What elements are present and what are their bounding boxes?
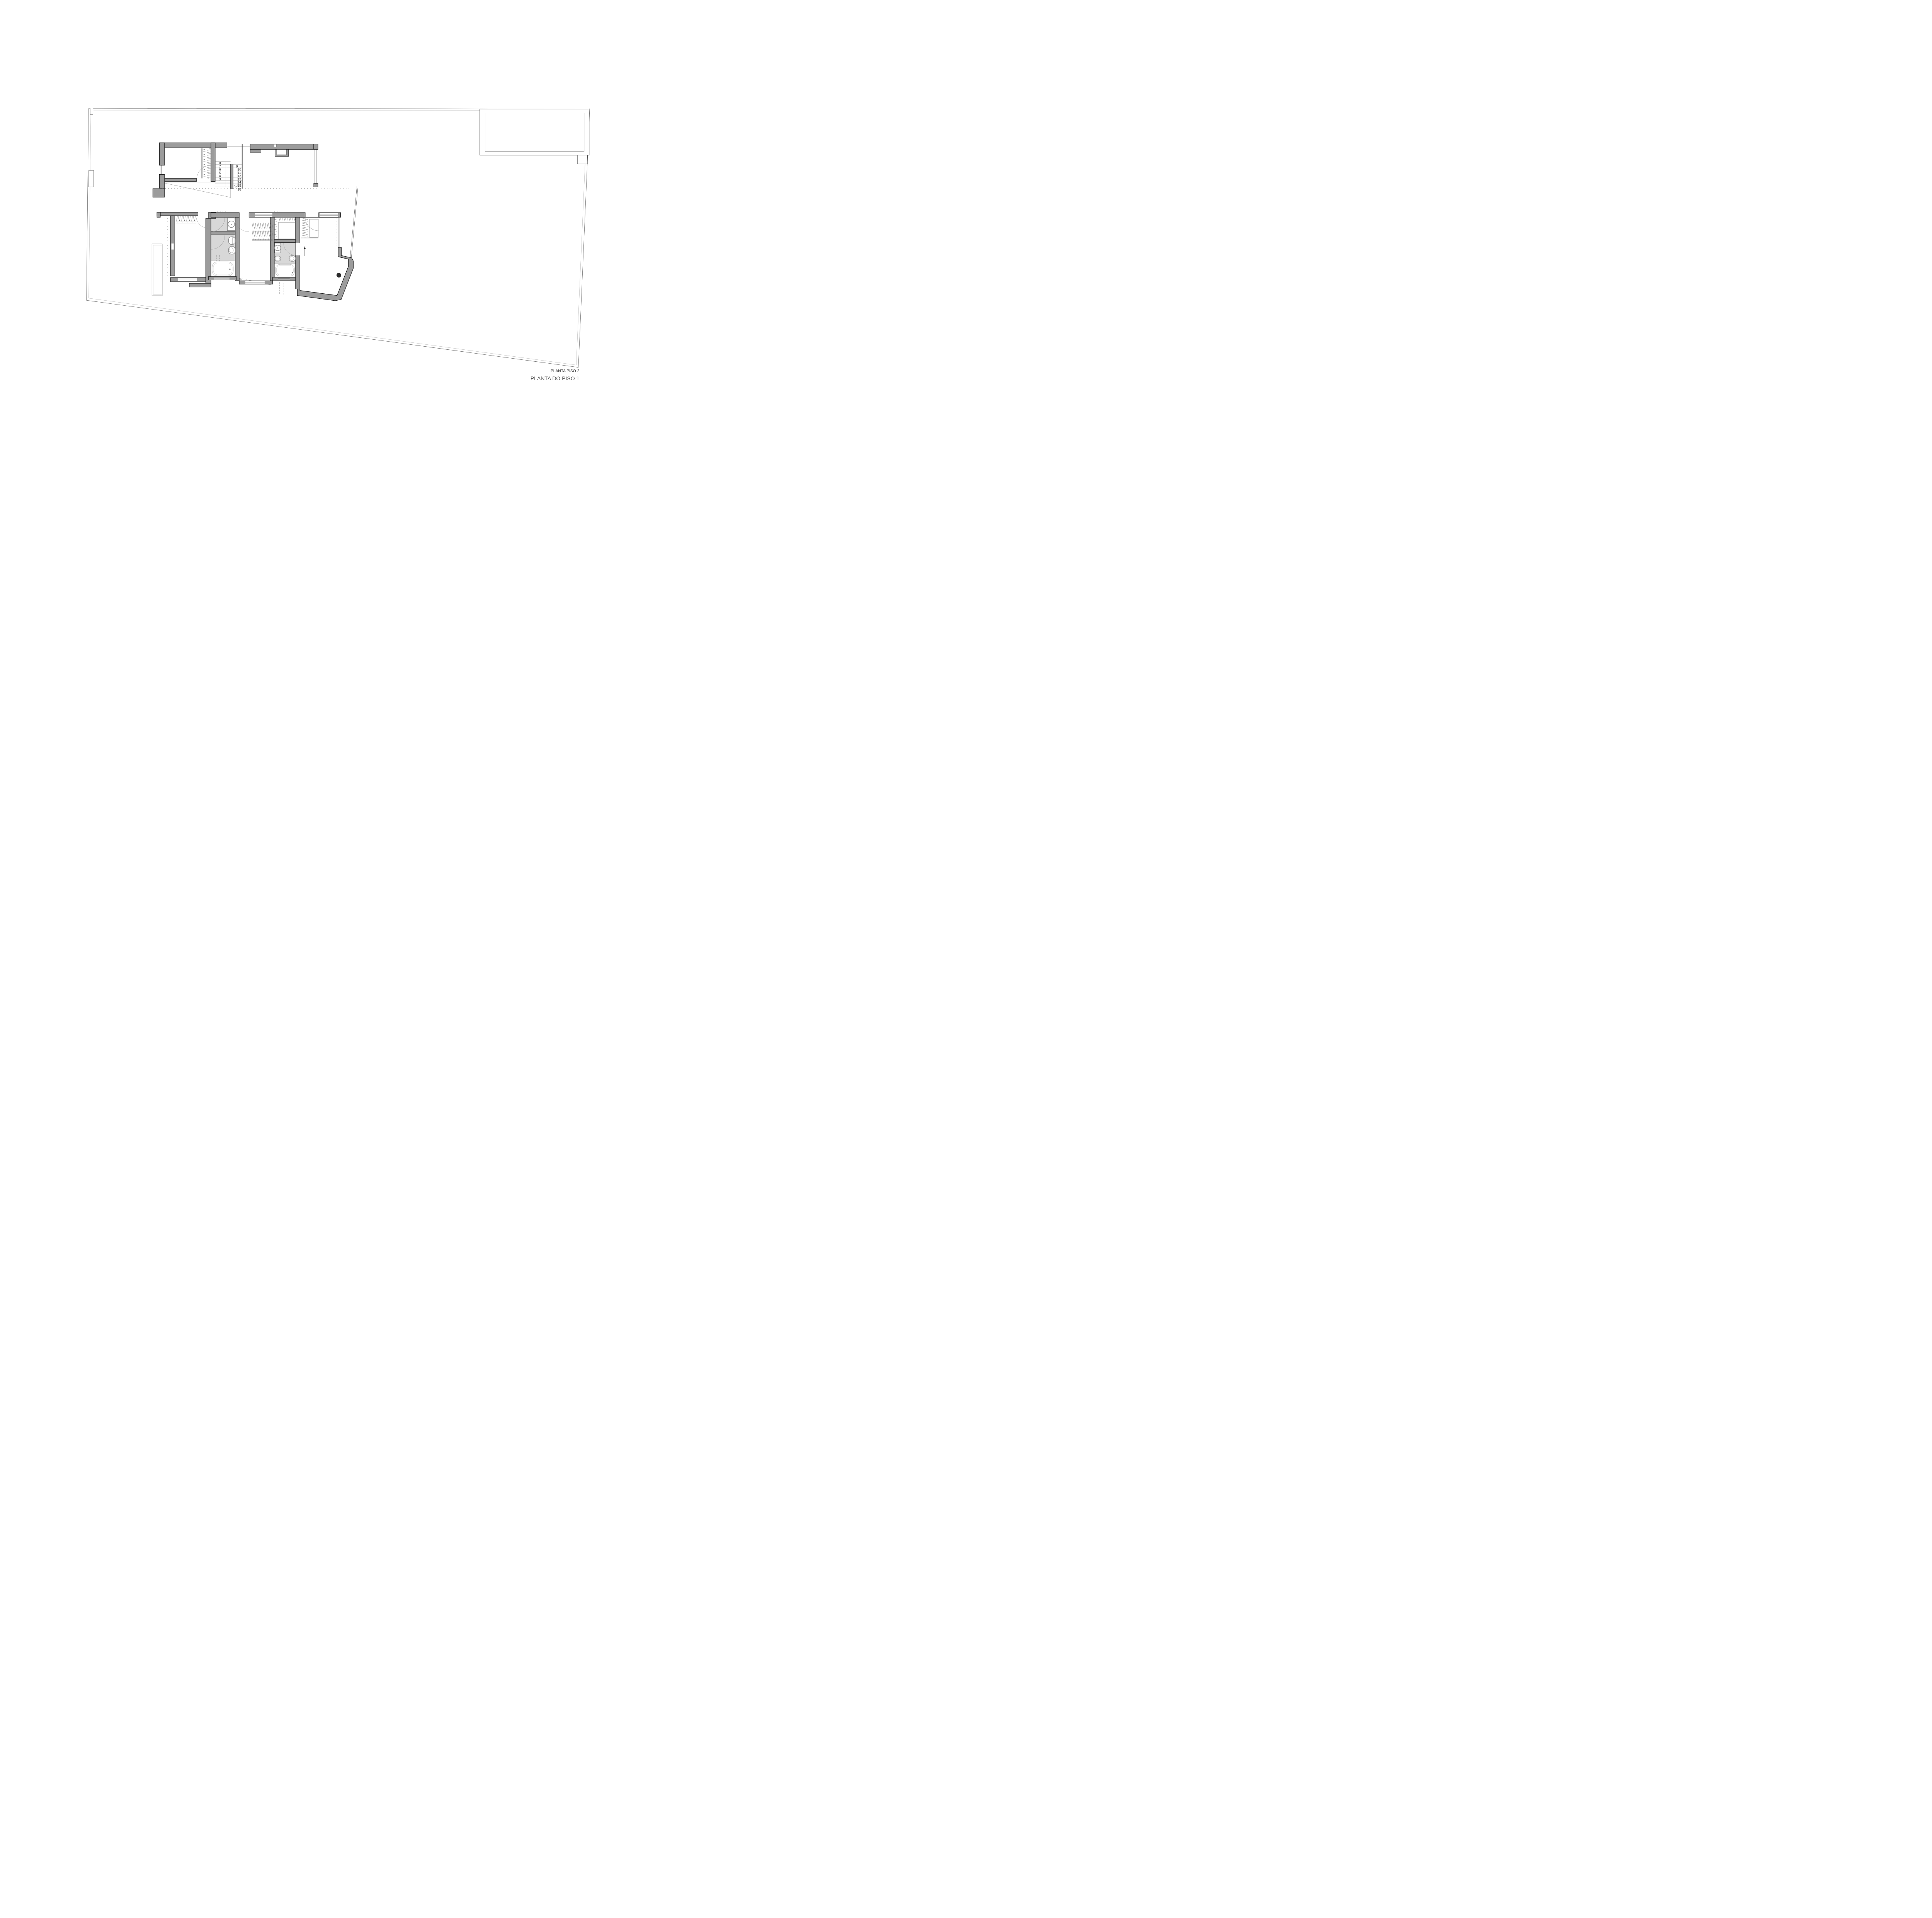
pool-outline xyxy=(480,109,589,164)
stair-number: 13 xyxy=(238,177,241,181)
drawing-sheet: { "titles": { "plan_level_2": "PLANTA PI… xyxy=(0,0,678,480)
titles: PLANTA PISO 2 PLANTA DO PISO 1 xyxy=(531,369,580,381)
bath1-bidet xyxy=(229,247,235,254)
room2-top-wall xyxy=(250,144,318,150)
stair-number: 14 xyxy=(238,181,241,184)
boundary-jog-top-left xyxy=(90,108,93,114)
floor-plan-canvas: 8 7 6 5 4 3 9 10 11 12 13 14 15 16 xyxy=(0,0,678,480)
pool-step xyxy=(577,155,587,164)
balcony-outline xyxy=(152,244,162,296)
bedroomB-wardrobe-hatch xyxy=(252,221,272,240)
stair-number: 7 xyxy=(219,165,221,168)
stair-spine-wall xyxy=(231,164,233,189)
room1-top-wall xyxy=(159,143,227,148)
stair-number: 3 xyxy=(219,177,221,181)
room2-corner-column xyxy=(314,184,318,187)
stair-number: 6 xyxy=(219,168,221,172)
bathroom1-divider-wall xyxy=(211,231,235,234)
column-dot xyxy=(337,273,341,277)
stair-number: 11 xyxy=(238,171,241,175)
master-closet-hatch xyxy=(300,218,309,237)
stair-number: 9 xyxy=(236,165,238,168)
stair-number: 10 xyxy=(238,168,241,172)
stair-number: 4 xyxy=(219,174,221,178)
room1-wardrobe-hatch xyxy=(203,148,211,178)
stair-number: 5 xyxy=(219,171,221,175)
label-planta-piso-2: PLANTA PISO 2 xyxy=(551,369,580,373)
bath2-closet-hatch xyxy=(274,218,278,239)
stair-number: 15 xyxy=(238,184,241,187)
stair-number: 8 xyxy=(219,162,221,165)
closet-divider-wall xyxy=(274,240,296,243)
boundary-jog-left xyxy=(88,170,94,187)
upper-floor-rooms xyxy=(153,143,318,197)
stair-number: 12 xyxy=(238,174,241,178)
room1-bottom-wall xyxy=(165,178,196,181)
staircase: 8 7 6 5 4 3 9 10 11 12 13 14 15 16 xyxy=(215,144,243,191)
label-planta-do-piso-1: PLANTA DO PISO 1 xyxy=(531,375,580,381)
